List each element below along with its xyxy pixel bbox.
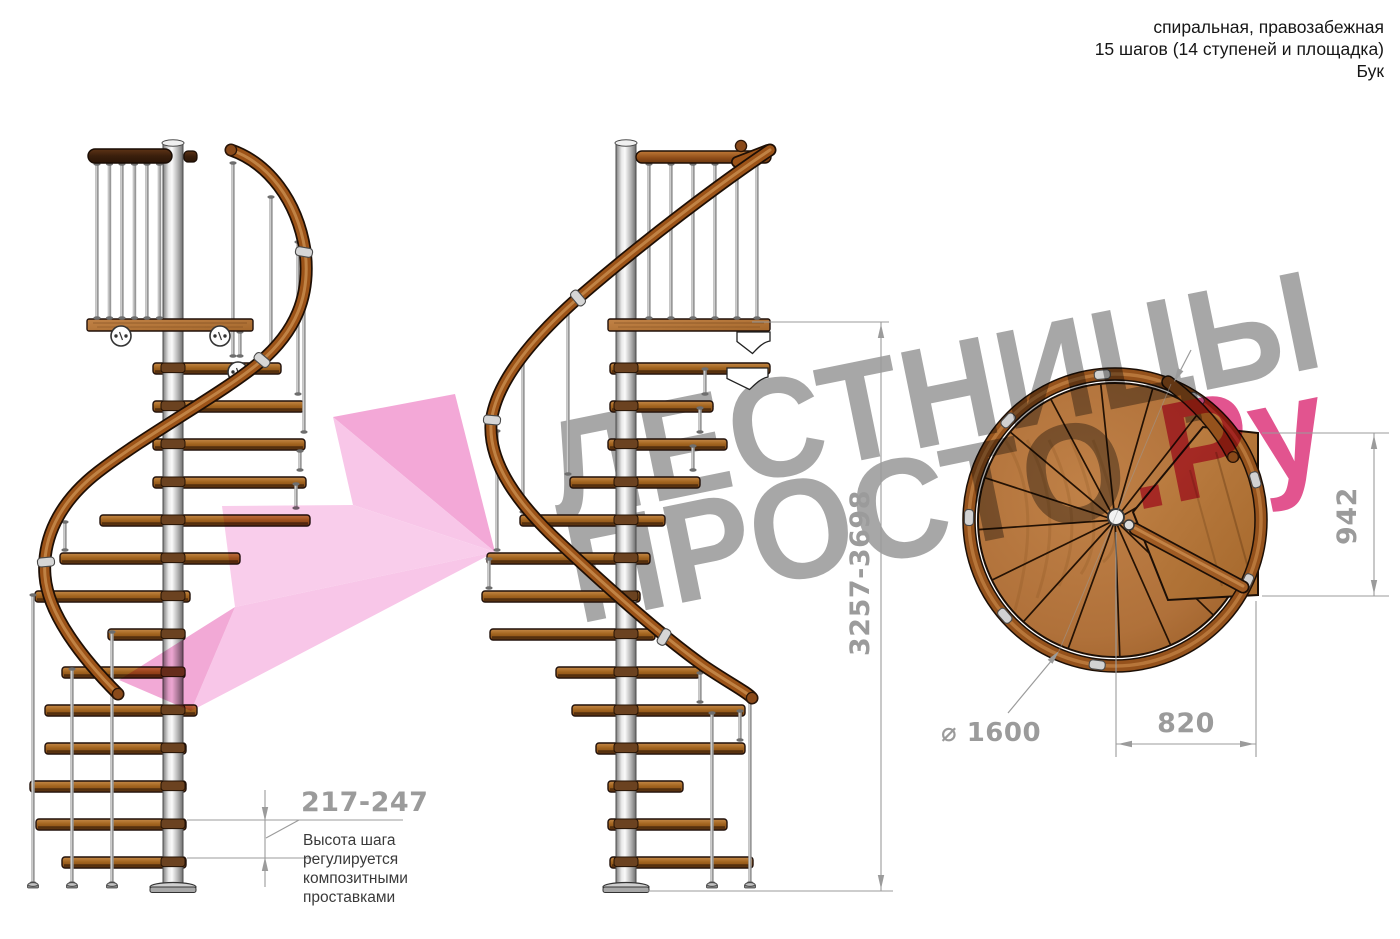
dimension-layer: 217-247 3257-3698 942 820 ⌀ 1600: [0, 0, 1400, 939]
dim-diameter-label: ⌀ 1600: [941, 718, 1041, 748]
technical-drawing-canvas: ЛЕСТНИЦЫ ПРОСТО.Ру 217-247 3257-3698 942…: [0, 0, 1400, 939]
spec-material: Бук: [1095, 60, 1384, 82]
dim-landing-width-label: 942: [1332, 487, 1363, 545]
spec-steps: 15 шагов (14 ступеней и площадка): [1095, 38, 1384, 60]
step-height-annotation: Высота шага регулируется композитными пр…: [303, 831, 417, 907]
spec-header: спиральная, правозабежная 15 шагов (14 с…: [1095, 16, 1384, 82]
spec-type: спиральная, правозабежная: [1095, 16, 1384, 38]
dim-step-height-label: 217-247: [301, 787, 428, 818]
dim-landing-depth-label: 820: [1157, 708, 1215, 739]
dim-total-height-label: 3257-3698: [845, 490, 876, 656]
